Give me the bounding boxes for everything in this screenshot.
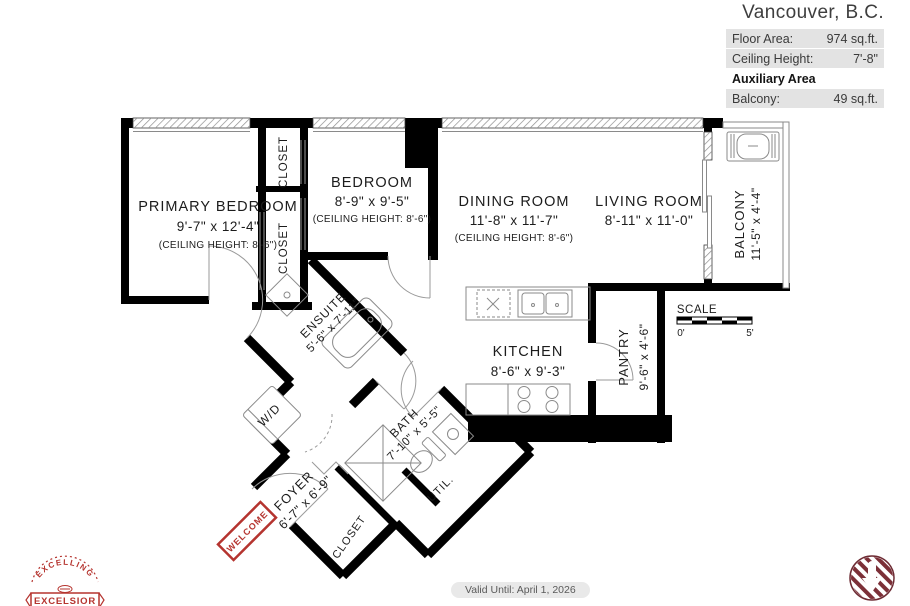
- balcony-rail-east: [783, 122, 789, 288]
- label-kitchen: KITCHEN 8'-6" x 9'-3": [491, 344, 566, 379]
- label-primary-bedroom: PRIMARY BEDROOM 9'-7" x 12'-4" (CEILING …: [138, 199, 298, 251]
- svg-text:BEDROOM: BEDROOM: [331, 175, 413, 191]
- floorplan-page: PRIMARY BEDROOM 9'-7" x 12'-4" (CEILING …: [0, 0, 910, 606]
- svg-text:(CEILING HEIGHT: 8'-6"): (CEILING HEIGHT: 8'-6"): [455, 233, 574, 244]
- dishwasher: [477, 290, 510, 317]
- svg-text:KITCHEN: KITCHEN: [493, 344, 564, 360]
- ensuite-door: [376, 353, 416, 409]
- row-label: Balcony:: [732, 92, 780, 106]
- svg-text:EXCELSIOR: EXCELSIOR: [34, 596, 96, 606]
- bedroom-door: [388, 256, 430, 298]
- label-pantry: PANTRY 9'-6" x 4'-6": [616, 324, 651, 391]
- balcony-bench: [727, 132, 779, 161]
- window-bedroom: [313, 118, 405, 128]
- balcony-rail-top: [723, 122, 788, 128]
- label-bedroom: BEDROOM 8'-9" x 9'-5" (CEILING HEIGHT: 8…: [313, 175, 432, 225]
- kitchen-counter-top: [466, 287, 590, 320]
- label-living-room: LIVING ROOM 8'-11" x 11'-0": [595, 194, 703, 228]
- table-row-ceiling-height: Ceiling Height: 7'-8": [726, 49, 884, 68]
- row-value: 974 sq.ft.: [827, 32, 878, 46]
- primary-bedroom-door: [209, 246, 263, 338]
- svg-text:8'-6" x 9'-3": 8'-6" x 9'-3": [491, 364, 566, 379]
- svg-text:8'-9" x 9'-5": 8'-9" x 9'-5": [335, 194, 410, 209]
- row-label: Floor Area:: [732, 32, 793, 46]
- balcony-slider-door: [703, 160, 712, 248]
- svg-text:PRIMARY BEDROOM: PRIMARY BEDROOM: [138, 199, 298, 215]
- brand-circle-logo: [850, 556, 894, 600]
- row-label: Auxiliary Area: [732, 72, 816, 86]
- row-label: Ceiling Height:: [732, 52, 813, 66]
- row-value: 49 sq.ft.: [834, 92, 878, 106]
- svg-text:BALCONY: BALCONY: [732, 189, 747, 258]
- scale-indicator: SCALE 0' 5': [677, 304, 754, 339]
- svg-text:0': 0': [677, 328, 685, 339]
- svg-text:LIVING ROOM: LIVING ROOM: [595, 194, 703, 210]
- window-living-dining: [442, 118, 703, 128]
- svg-text:11'-5" x 4'-4": 11'-5" x 4'-4": [749, 187, 763, 260]
- kitchen-sink: [518, 290, 572, 317]
- window-balcony-wall-lower: [704, 245, 712, 279]
- walls: [121, 118, 790, 576]
- svg-text:11'-8" x 11'-7": 11'-8" x 11'-7": [470, 213, 559, 228]
- svg-text:PANTRY: PANTRY: [616, 328, 631, 386]
- svg-text:DINING ROOM: DINING ROOM: [459, 194, 570, 210]
- table-row-auxiliary-area: Auxiliary Area: [726, 69, 884, 88]
- label-balcony: BALCONY 11'-5" x 4'-4": [732, 187, 763, 260]
- table-row-floor-area: Floor Area: 974 sq.ft.: [726, 29, 884, 48]
- svg-text:SCALE: SCALE: [677, 304, 717, 316]
- welcome-mat: WELCOME: [218, 502, 276, 560]
- room-labels: PRIMARY BEDROOM 9'-7" x 12'-4" (CEILING …: [138, 136, 763, 561]
- window-balcony-wall-upper: [704, 132, 712, 160]
- excelsior-logo: EXCELLING EXCELSIOR: [26, 556, 104, 606]
- kitchen-counter-bottom: [466, 384, 508, 415]
- svg-text:8'-11" x 11'-0": 8'-11" x 11'-0": [605, 213, 694, 228]
- table-row-balcony: Balcony: 49 sq.ft.: [726, 89, 884, 108]
- excelsior-banner: EXCELSIOR: [26, 593, 104, 606]
- svg-text:9'-7" x 12'-4": 9'-7" x 12'-4": [177, 219, 260, 234]
- row-value: 7'-8": [853, 52, 878, 66]
- info-table: Floor Area: 974 sq.ft. Ceiling Height: 7…: [726, 29, 884, 109]
- svg-text:5': 5': [746, 328, 754, 339]
- label-dining-room: DINING ROOM 11'-8" x 11'-7" (CEILING HEI…: [455, 194, 574, 244]
- label-closet-top: CLOSET: [278, 136, 290, 188]
- svg-text:(CEILING HEIGHT: 8'-6"): (CEILING HEIGHT: 8'-6"): [313, 214, 432, 225]
- stove: [508, 384, 570, 415]
- wd-door-arc: [305, 414, 332, 452]
- label-util: UTIL.: [425, 473, 456, 504]
- page-title: Vancouver, B.C.: [600, 2, 884, 24]
- svg-text:EXCELLING: EXCELLING: [34, 558, 96, 580]
- svg-text:9'-6" x 4'-6": 9'-6" x 4'-6": [637, 324, 651, 391]
- window-primary-bedroom: [133, 118, 250, 128]
- label-closet-mid: CLOSET: [278, 222, 290, 274]
- valid-until-badge: Valid Until: April 1, 2026: [451, 582, 590, 598]
- svg-text:(CEILING HEIGHT: 8'-6"): (CEILING HEIGHT: 8'-6"): [159, 240, 278, 251]
